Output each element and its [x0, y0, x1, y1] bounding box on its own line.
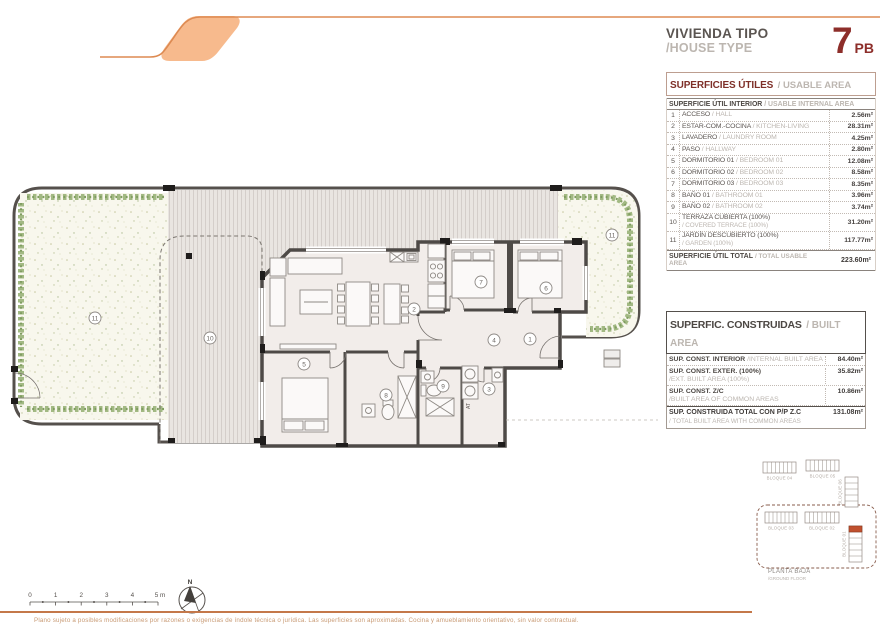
svg-text:11: 11: [609, 232, 616, 239]
key-plan-block: BLOQUE 02: [805, 512, 839, 531]
svg-text:10: 10: [206, 335, 214, 342]
scale-label: 1: [54, 592, 58, 599]
north-label: N: [188, 579, 193, 586]
svg-text:8: 8: [384, 392, 388, 399]
key-plan-highlighted-unit: [849, 526, 862, 532]
key-plan-caption-en: /GROUND FLOOR: [768, 576, 807, 581]
key-plan-block: BLOQUE 05: [806, 460, 839, 479]
svg-text:11: 11: [92, 315, 99, 322]
garden-left: [20, 193, 168, 420]
built-total-value: 131.08m²: [823, 409, 865, 416]
room-label-11: 11: [606, 229, 618, 241]
usable-area-header: SUPERFICIES ÚTILES / USABLE AREA: [666, 72, 876, 96]
svg-text:BLOQUE 01: BLOQUE 01: [842, 531, 847, 557]
footer-divider: [0, 611, 752, 613]
svg-text:BLOQUE 03: BLOQUE 03: [768, 526, 794, 531]
key-plan-block: BLOQUE 04: [763, 462, 796, 481]
usable-row-3: 3LAVADERO / LAUNDRY ROOM4.25m²: [667, 133, 875, 145]
usable-row-10: 10TERRAZA CUBIERTA (100%) / COVERED TERR…: [667, 214, 875, 232]
room-label-8: 8: [380, 389, 392, 401]
usable-area-title-es: SUPERFICIES ÚTILES: [670, 80, 773, 91]
usable-row-7: 7DORMITORIO 03 / BEDROOM 038.35m²: [667, 179, 875, 191]
svg-text:7: 7: [479, 279, 483, 286]
key-plan: BLOQUE 04BLOQUE 05BLOQUE 06BLOQUE 03BLOQ…: [757, 460, 876, 581]
scale-label: 5 m: [155, 592, 166, 599]
room-label-9: 9: [437, 380, 449, 392]
usable-row-6: 6DORMITORIO 02 / BEDROOM 028.58m²: [667, 168, 875, 180]
built-area-table: SUPERFIC. CONSTRUIDAS / BUILT AREA SUP. …: [666, 311, 866, 429]
scale-label: 3: [105, 592, 109, 599]
room-label-7: 7: [475, 276, 487, 288]
svg-text:5: 5: [302, 361, 306, 368]
unit-number: 7: [832, 24, 853, 58]
usable-row-1: 1ACCESO / HALL2.56m²: [667, 110, 875, 122]
svg-text:1: 1: [528, 336, 532, 343]
room-label-11: 11: [89, 312, 101, 324]
key-plan-block: BLOQUE 06: [838, 477, 859, 507]
room-label-5: 5: [298, 358, 310, 370]
scale-label: 2: [79, 592, 83, 599]
built-total-row: SUP. CONSTRUIDA TOTAL CON P/P Z.C / TOTA…: [667, 406, 865, 428]
laundry-at-label: AT: [466, 403, 472, 409]
disclaimer-text: Plano sujeto a posibles modificaciones p…: [34, 617, 779, 624]
usable-area-title-en: / USABLE AREA: [778, 80, 852, 91]
key-plan-caption-es: PLANTA BAJA: [768, 569, 811, 575]
svg-text:3: 3: [487, 386, 491, 393]
info-panel: VIVIENDA TIPO /HOUSE TYPE 7 PB SUPERFICI…: [666, 26, 876, 271]
built-row-3: SUP. CONST. Z/C /BUILT AREA OF COMMON AR…: [667, 386, 865, 406]
room-label-3: 3: [483, 383, 495, 395]
usable-row-4: 4PASO / HALLWAY2.80m²: [667, 145, 875, 157]
room-label-10: 10: [204, 332, 216, 344]
svg-text:BLOQUE 05: BLOQUE 05: [810, 474, 836, 479]
plan-sheet: AT 111025764189311 012345 m N BLOQUE 04B…: [0, 0, 880, 640]
svg-text:9: 9: [441, 383, 445, 390]
usable-row-2: 2ESTAR-COM.-COCINA / KITCHEN-LIVING28.31…: [667, 122, 875, 134]
usable-row-9: 9BAÑO 02 / BATHROOM 023.74m²: [667, 202, 875, 214]
room-label-6: 6: [540, 282, 552, 294]
svg-text:6: 6: [544, 285, 548, 292]
column-marker: [186, 253, 192, 259]
north-arrow-icon: N: [179, 579, 205, 613]
scale-label: 4: [131, 592, 135, 599]
svg-text:2: 2: [412, 306, 416, 313]
svg-text:BLOQUE 04: BLOQUE 04: [767, 476, 793, 481]
usable-area-table: SUPERFICIE ÚTIL INTERIOR / USABLE INTERN…: [666, 98, 876, 271]
scale-bar: 012345 m: [28, 592, 165, 606]
svg-text:BLOQUE 06: BLOQUE 06: [838, 479, 843, 505]
usable-row-8: 8BAÑO 01 / BATHROOM 013.96m²: [667, 191, 875, 203]
usable-row-5: 5DORMITORIO 01 / BEDROOM 0112.08m²: [667, 156, 875, 168]
key-plan-block: BLOQUE 01: [842, 526, 863, 562]
room-label-1: 1: [524, 333, 536, 345]
room-label-2: 2: [408, 303, 420, 315]
unit-floor: PB: [855, 38, 874, 58]
room-label-4: 4: [488, 334, 500, 346]
built-row-2: SUP. CONST. EXTER. (100%) /EXT. BUILT AR…: [667, 366, 865, 386]
unit-code: 7 PB: [832, 24, 874, 58]
scale-label: 0: [28, 592, 32, 599]
built-area-title-es: SUPERFIC. CONSTRUIDAS: [670, 319, 802, 331]
usable-row-11: 11JARDÍN DESCUBIERTO (100%) / GARDEN (10…: [667, 232, 875, 250]
svg-text:4: 4: [492, 337, 496, 344]
built-row-1: SUP. CONST. INTERIOR /INTERNAL BUILT ARE…: [667, 354, 865, 366]
built-area-header: SUPERFIC. CONSTRUIDAS / BUILT AREA: [666, 311, 866, 354]
svg-text:BLOQUE 02: BLOQUE 02: [809, 526, 835, 531]
usable-internal-subtitle: SUPERFICIE ÚTIL INTERIOR / USABLE INTERN…: [667, 98, 875, 110]
sheet-title: VIVIENDA TIPO /HOUSE TYPE 7 PB: [666, 26, 876, 68]
usable-total-value: 223.60m²: [823, 257, 873, 264]
usable-total-row: SUPERFICIE ÚTIL TOTAL / TOTAL USABLE ARE…: [667, 250, 875, 271]
bedroom-divider-wall: [507, 242, 513, 312]
key-plan-block: BLOQUE 03: [765, 512, 797, 531]
